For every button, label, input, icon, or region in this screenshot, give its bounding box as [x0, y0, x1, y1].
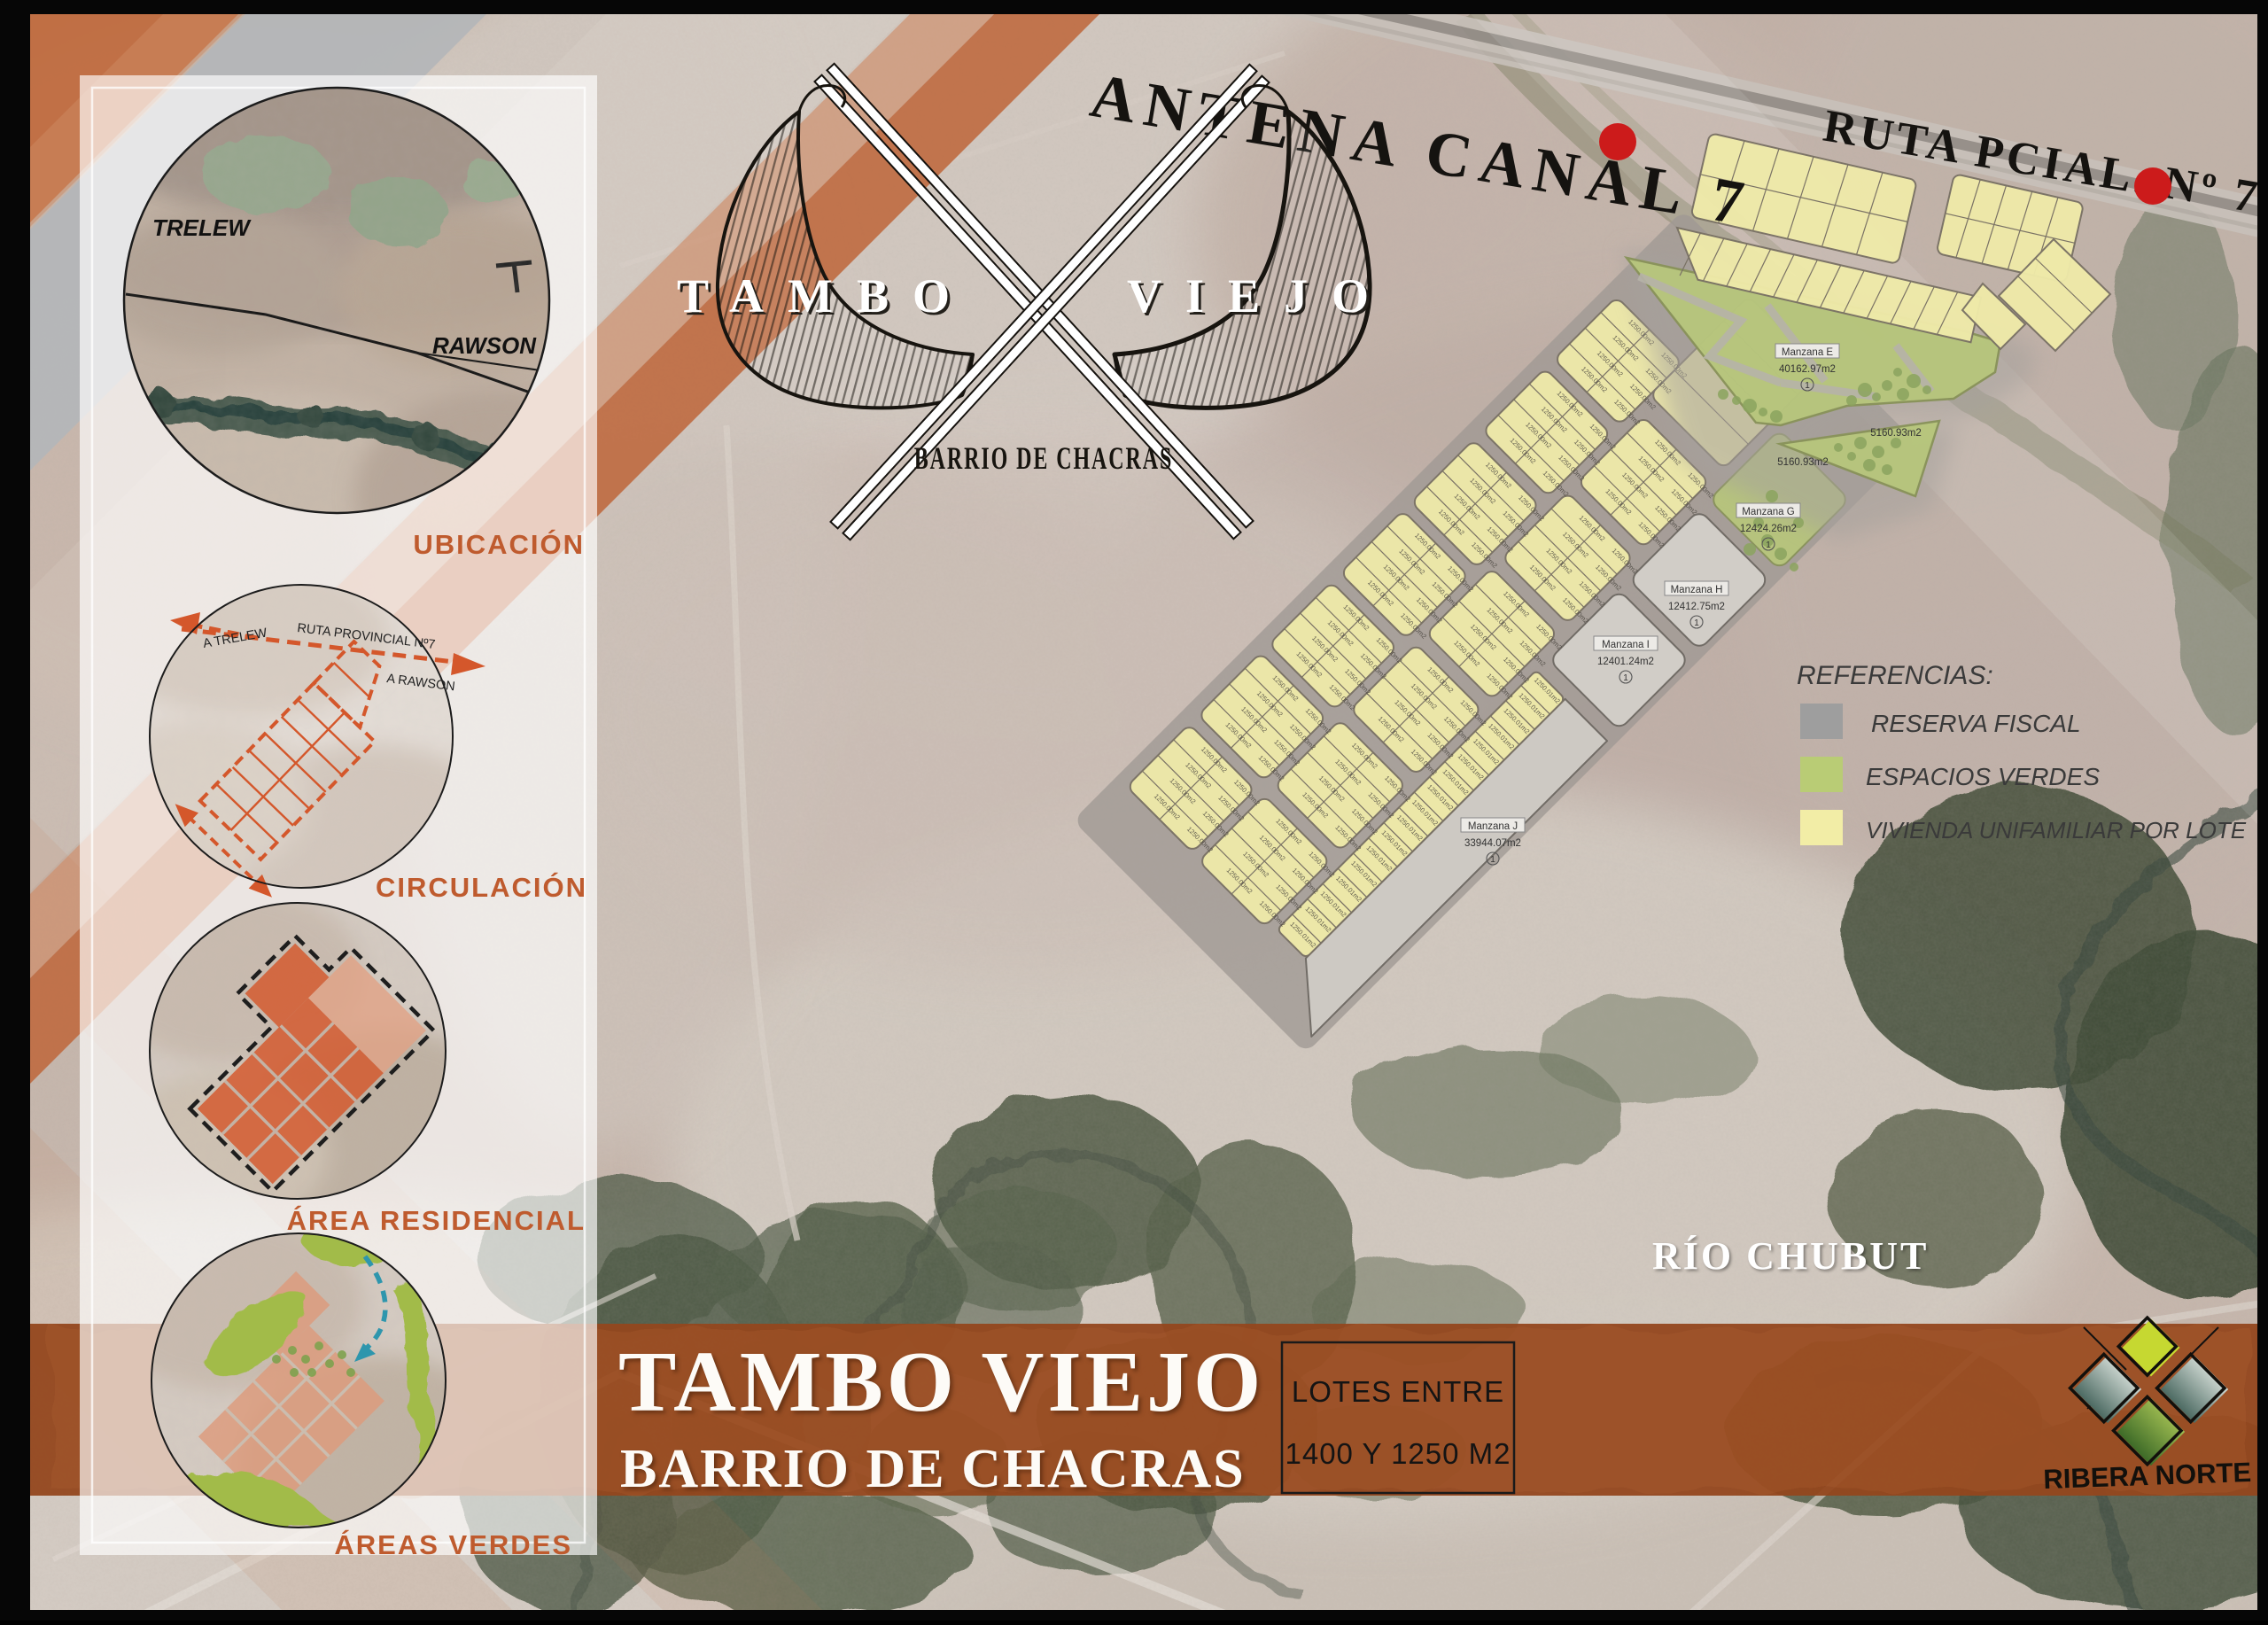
svg-text:12412.75m2: 12412.75m2: [1668, 602, 1725, 612]
svg-text:1: 1: [1805, 381, 1810, 391]
svg-text:RESERVA FISCAL: RESERVA FISCAL: [1871, 710, 2081, 737]
svg-text:RAWSON: RAWSON: [432, 332, 537, 359]
svg-text:UBICACIÓN: UBICACIÓN: [413, 528, 585, 560]
svg-text:BARRIO DE CHACRAS: BARRIO DE CHACRAS: [914, 440, 1174, 476]
svg-text:Manzana E: Manzana E: [1782, 347, 1834, 358]
svg-text:ESPACIOS VERDES: ESPACIOS VERDES: [1866, 763, 2100, 790]
svg-text:Manzana J: Manzana J: [1468, 821, 1518, 832]
svg-text:REFERENCIAS:: REFERENCIAS:: [1797, 661, 1993, 690]
svg-text:TRELEW: TRELEW: [152, 214, 252, 241]
svg-text:Manzana G: Manzana G: [1742, 507, 1795, 517]
svg-text:1400 Y 1250 M2: 1400 Y 1250 M2: [1285, 1437, 1511, 1470]
svg-text:BARRIO DE CHACRAS: BARRIO DE CHACRAS: [620, 1439, 1246, 1499]
svg-text:LOTES ENTRE: LOTES ENTRE: [1292, 1375, 1504, 1408]
svg-text:VIVIENDA UNIFAMILIAR POR LOTE: VIVIENDA UNIFAMILIAR POR LOTE: [1866, 817, 2247, 844]
svg-text:Manzana I: Manzana I: [1602, 640, 1650, 650]
svg-text:VIEJO: VIEJO: [1127, 269, 1393, 323]
svg-text:1: 1: [1490, 855, 1495, 865]
svg-text:TAMBO VIEJO: TAMBO VIEJO: [618, 1334, 1264, 1430]
svg-text:33944.07m2: 33944.07m2: [1464, 838, 1521, 849]
svg-text:CIRCULACIÓN: CIRCULACIÓN: [376, 871, 587, 903]
svg-text:12424.26m2: 12424.26m2: [1740, 524, 1797, 534]
svg-text:5160.93m2: 5160.93m2: [1870, 428, 1922, 439]
svg-text:1: 1: [1623, 673, 1628, 683]
svg-text:1: 1: [1766, 540, 1771, 550]
svg-text:Manzana H: Manzana H: [1671, 585, 1723, 595]
svg-text:TAMBO: TAMBO: [677, 269, 974, 323]
svg-text:RÍO CHUBUT: RÍO CHUBUT: [1652, 1234, 1929, 1278]
svg-text:12401.24m2: 12401.24m2: [1597, 657, 1654, 667]
svg-text:40162.97m2: 40162.97m2: [1779, 364, 1836, 375]
svg-text:ÁREA RESIDENCIAL: ÁREA RESIDENCIAL: [287, 1205, 586, 1236]
svg-text:ÁREAS VERDES: ÁREAS VERDES: [334, 1529, 572, 1560]
svg-text:5160.93m2: 5160.93m2: [1777, 457, 1829, 468]
svg-text:1: 1: [1694, 618, 1699, 628]
